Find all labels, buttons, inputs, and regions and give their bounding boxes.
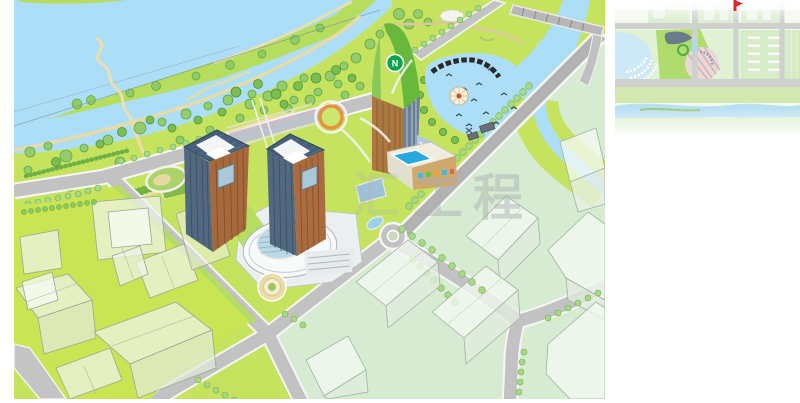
svg-text:N: N	[392, 59, 399, 69]
svg-text:工程: 工程	[413, 170, 533, 226]
svg-text:汇: 汇	[352, 170, 400, 223]
